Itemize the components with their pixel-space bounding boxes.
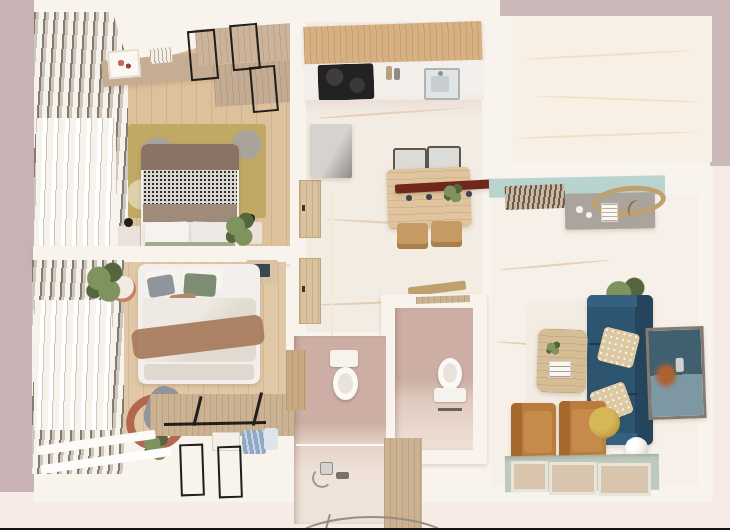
cooktop: [317, 63, 374, 101]
wardrobe2-clothes: [264, 428, 278, 450]
bedroom1-plant: [226, 210, 256, 248]
counter-shadow: [306, 100, 482, 116]
sofa-armrest: [587, 295, 637, 307]
wardrobe-frame: [187, 29, 219, 81]
fridge: [310, 124, 352, 178]
door-handle: [302, 286, 305, 292]
kitchen-sink: [424, 68, 460, 100]
bathroom-cabinet: [286, 350, 306, 410]
bed1-headboard: [141, 144, 239, 170]
marble-vein: [500, 259, 610, 271]
counter-bottles: [386, 66, 392, 80]
toilet-cistern: [330, 350, 358, 367]
sink-faucet: [438, 71, 443, 76]
shelf-art-frame: [107, 49, 141, 80]
console-frame: [601, 203, 618, 222]
exterior-top-right: [710, 0, 730, 166]
marble-vein: [517, 131, 697, 139]
magazine: [549, 361, 571, 378]
shower-hose: [312, 468, 332, 488]
wardrobe-frame: [249, 65, 279, 113]
armchair-seat: [524, 411, 552, 453]
wardrobe-frame: [229, 23, 261, 71]
bed-1: [141, 144, 239, 252]
sphere-lamp-black: [124, 218, 133, 227]
sink-basin: [431, 76, 449, 92]
toilet-seat: [338, 373, 353, 394]
brass-disc-lamp: [589, 407, 620, 438]
pendant-lamp: [406, 195, 412, 201]
bed-2: [138, 264, 260, 384]
floor-drain: [438, 408, 462, 411]
pendant-lamp: [466, 191, 472, 197]
wall-art: [645, 326, 706, 420]
art-orange-blob: [656, 364, 677, 387]
counter-bottles: [394, 68, 400, 80]
armchair: [511, 403, 556, 461]
wardrobe2-clothes: [242, 430, 266, 454]
table-plant: [443, 183, 465, 203]
toilet-seat: [443, 363, 457, 383]
dining-chair-tan: [397, 223, 428, 249]
toilet-bowl: [333, 367, 358, 400]
exterior-left: [0, 0, 34, 492]
framed-print: [511, 461, 548, 492]
bed1-speckled-throw: [143, 170, 237, 204]
shelf-books: [149, 47, 172, 64]
wardrobe2-wood-wall: [150, 394, 302, 436]
marble-vein: [522, 50, 692, 61]
toilet-cistern: [434, 388, 466, 402]
dining-chair-tan: [431, 221, 462, 247]
marble-vein: [537, 95, 697, 103]
console-vase: [576, 206, 583, 213]
door-handle: [302, 205, 305, 211]
curtains-bedroom1-sheer: [36, 118, 116, 250]
bedroom2-plant: [86, 260, 126, 304]
art-white-sail: [675, 358, 683, 372]
coffee-table-decor: [546, 341, 562, 355]
framed-print: [598, 463, 651, 496]
toilet-bowl: [438, 358, 462, 390]
console-vase: [586, 212, 592, 218]
radiator-grille: [505, 184, 566, 210]
armchair-back: [511, 403, 522, 461]
shower-drain: [336, 472, 349, 479]
bed1-blanket: [143, 204, 237, 222]
framed-print: [549, 462, 597, 495]
wardrobe2-frame: [179, 444, 205, 497]
floor-plan-render: [0, 0, 730, 530]
exterior-top: [500, 0, 730, 16]
curtains-bedroom2-sheer: [34, 300, 112, 430]
bed2-foot: [144, 364, 254, 380]
nightstand: [118, 226, 140, 248]
armchair-back: [559, 401, 570, 460]
shower-glass: [296, 444, 384, 446]
terrace-floor: [512, 16, 712, 162]
wardrobe2-frame: [217, 446, 243, 499]
pendant-lamp: [426, 194, 432, 200]
